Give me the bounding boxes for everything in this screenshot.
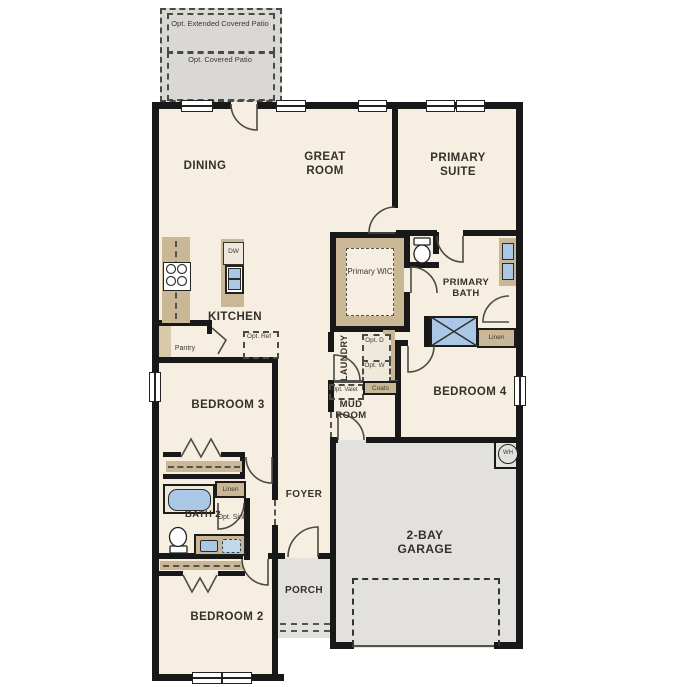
optional-sink-label: Opt. Sink — [212, 514, 252, 522]
room-label-great-room: GREAT ROOM — [294, 151, 356, 179]
room-label-mud-room: MUD ROOM — [329, 399, 373, 422]
valet-label: Opt. Valet — [329, 387, 360, 394]
room-label-primary-suite: PRIMARY SUITE — [424, 152, 492, 180]
dishwasher: DW — [223, 242, 244, 265]
window — [181, 100, 213, 112]
wall-laundry-a — [328, 332, 334, 352]
bath2-sink — [200, 540, 218, 552]
sink-basin — [228, 268, 241, 279]
wall-toiletroom-right — [433, 232, 439, 254]
wall-bed2-top-b — [268, 553, 278, 559]
wall-closet3-bottom — [163, 474, 245, 479]
room-label-kitchen: KITCHEN — [200, 311, 270, 325]
linen-label: Linen — [479, 334, 514, 341]
garage-door-outline — [352, 578, 500, 646]
wall-front-a — [278, 553, 285, 559]
room-label-bedroom3: BEDROOM 3 — [186, 399, 270, 413]
window — [149, 372, 161, 402]
bathtub — [168, 489, 211, 511]
island-sink — [225, 265, 244, 294]
room-label-bedroom4: BEDROOM 4 — [430, 386, 510, 400]
wall-closet3-top-a — [163, 452, 181, 457]
linen-label: Linen — [217, 486, 244, 493]
refrigerator-label: Opt. Ref — [244, 333, 274, 340]
wall-front-b — [318, 553, 336, 559]
room-label-garage: 2-BAY GARAGE — [383, 528, 467, 557]
linen-closet-hall: Linen — [215, 481, 246, 498]
window — [514, 376, 526, 406]
room-label-bedroom2: BEDROOM 2 — [182, 611, 272, 625]
covered-patio-label: Opt. Covered Patio — [170, 56, 270, 65]
wall-bed3-right — [272, 363, 278, 455]
porch-step — [280, 623, 330, 625]
wall-wic-right-b — [404, 292, 410, 332]
water-heater: WH — [498, 444, 518, 464]
wall-wic-bottom — [330, 326, 410, 332]
dishwasher-label: DW — [224, 248, 243, 255]
extended-patio-label: Opt. Extended Covered Patio — [170, 20, 270, 29]
porch-step — [280, 630, 330, 632]
cooktop-icon — [163, 262, 191, 291]
wall-closet2-a — [158, 571, 183, 576]
window — [222, 672, 252, 684]
floor-plan: DW Linen Coats WH Linen — [0, 0, 687, 687]
room-label-porch: PORCH — [282, 585, 326, 597]
room-label-foyer: FOYER — [282, 489, 326, 501]
room-label-primary-wic: Primary WIC — [342, 267, 398, 276]
backdoor-opening — [231, 102, 257, 109]
wall-wic-right-a — [404, 232, 410, 266]
room-label-primary-bath: PRIMARY BATH — [438, 277, 494, 300]
wall-greatroom-suite — [392, 102, 398, 208]
coats-label: Coats — [365, 385, 396, 392]
room-label-dining: DINING — [165, 160, 245, 174]
pantry-label: Pantry — [162, 345, 208, 353]
foyer-opening — [274, 500, 276, 525]
linen-closet-bath: Linen — [477, 328, 516, 348]
shower — [430, 316, 478, 347]
wall-toiletroom-bottom — [404, 262, 439, 268]
vanity-sink — [502, 263, 514, 280]
coats-closet: Coats — [363, 381, 398, 395]
wall-foyer-left-a — [272, 455, 278, 500]
wall-garage-left — [330, 443, 336, 648]
closet2-rod — [163, 565, 240, 567]
vanity-sink — [502, 243, 514, 260]
window — [456, 100, 485, 112]
porch-floor — [278, 558, 330, 638]
wall-foyer-left-b — [272, 525, 278, 681]
water-heater-nook: WH — [494, 443, 521, 469]
dryer-label: Opt. D — [362, 337, 387, 344]
window — [192, 672, 222, 684]
window — [358, 100, 387, 112]
washer-label: Opt. W — [362, 362, 387, 369]
window — [426, 100, 455, 112]
water-heater-label: WH — [499, 450, 517, 457]
wall-closet2-b — [218, 571, 245, 576]
closet3-rod — [168, 466, 240, 468]
bath2-vanity — [194, 534, 246, 556]
bath2-optional-sink — [222, 539, 241, 553]
window — [276, 100, 306, 112]
room-label-laundry: LAUNDRY — [339, 334, 353, 382]
sink-basin — [228, 279, 241, 290]
wall-suite-bath-b — [463, 230, 516, 236]
wic-interior — [346, 248, 394, 316]
